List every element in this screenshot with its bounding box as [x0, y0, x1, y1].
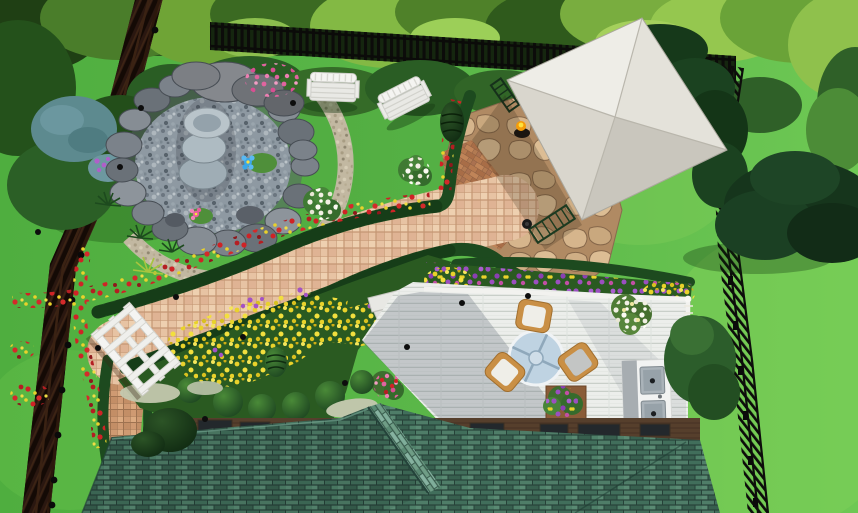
- tiered-fountain: [176, 98, 236, 202]
- landscape-render-canvas: [0, 0, 858, 513]
- grill-kettle-lid: [525, 222, 529, 226]
- spiral-topiary: [265, 347, 287, 377]
- planter-box: [543, 386, 586, 422]
- cone-topiary: [440, 102, 464, 142]
- patio-chair-1: [515, 298, 554, 333]
- garden-bench-1: [303, 72, 359, 114]
- garden-scene: [0, 0, 858, 513]
- pink-flower-patch: [245, 63, 299, 97]
